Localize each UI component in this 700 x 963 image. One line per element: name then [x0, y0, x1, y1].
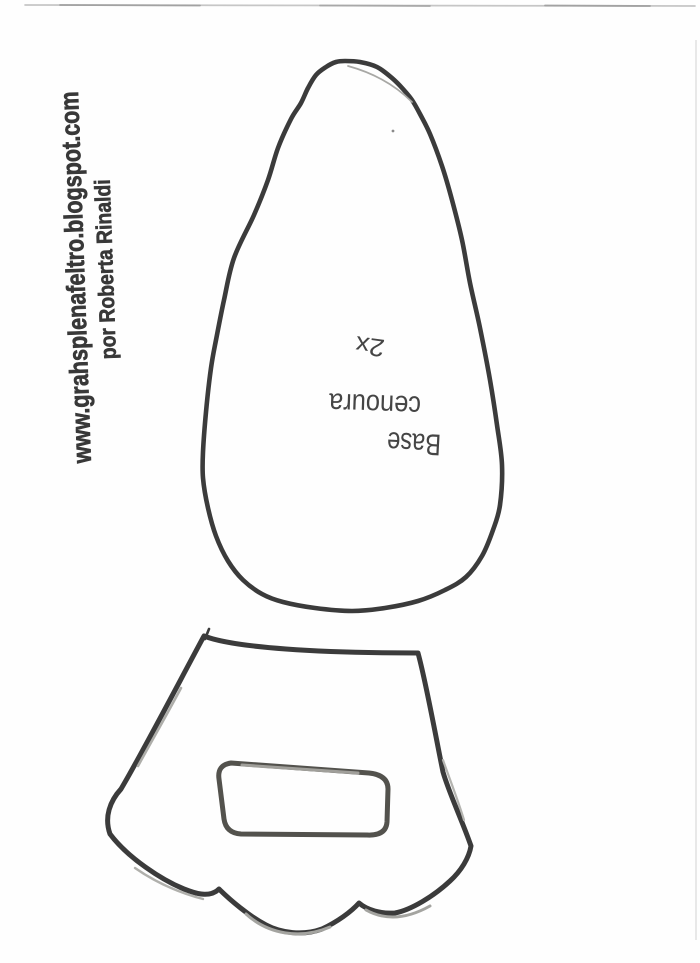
svg-text:Base: Base [386, 425, 442, 461]
svg-text:cenoura: cenoura [328, 386, 422, 421]
svg-text:2x: 2x [353, 330, 386, 362]
